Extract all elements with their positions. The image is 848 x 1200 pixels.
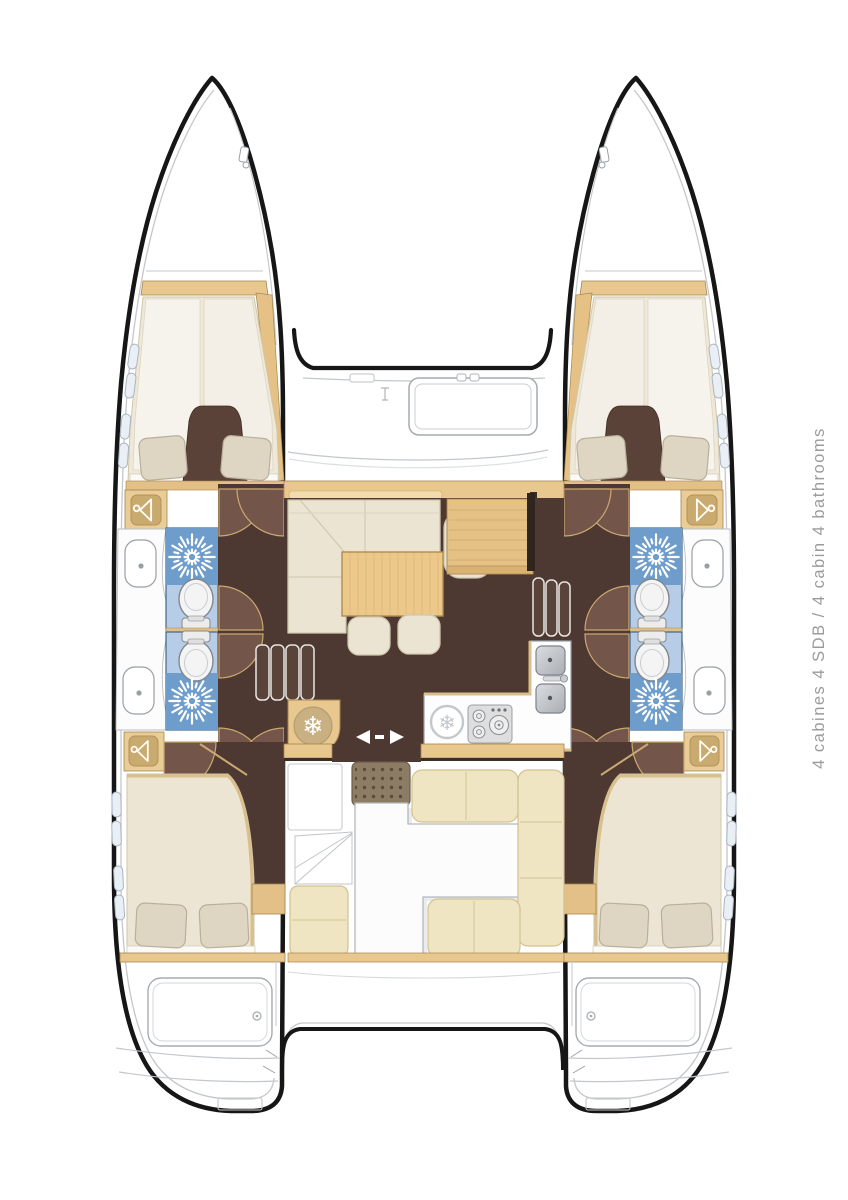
floor-plan-svg: ❄ ❄ <box>0 0 848 1200</box>
bench-cushion <box>518 770 564 946</box>
step <box>256 645 269 700</box>
step <box>559 582 570 636</box>
hull-port <box>112 78 285 1111</box>
faucet-icon <box>543 675 568 682</box>
snowflake-icon: ❄ <box>438 711 456 735</box>
cockpit-stairs <box>295 832 352 884</box>
step <box>301 645 314 700</box>
ottoman <box>348 617 390 655</box>
step <box>271 645 284 700</box>
catamaran-floor-plan: ❄ ❄ <box>0 0 848 1200</box>
bench-cushion <box>290 886 348 956</box>
saloon-table <box>342 552 443 616</box>
stove-icon <box>468 705 512 743</box>
cockpit <box>288 762 564 978</box>
step <box>286 645 299 700</box>
coachroof-front <box>294 330 551 368</box>
aft-crossbeam <box>282 1023 563 1070</box>
helm-panel <box>288 764 342 830</box>
snowflake-icon: ❄ <box>302 712 324 742</box>
saloon-front-cabinet <box>284 481 564 499</box>
foredeck-hatch <box>409 374 537 435</box>
nacelle-center: ❄ ❄ <box>256 330 571 1070</box>
layout-caption: 4 cabines 4 SDB / 4 cabin 4 bathrooms <box>810 427 828 769</box>
step <box>546 580 557 636</box>
step <box>533 578 544 636</box>
bench-cushion <box>412 770 518 822</box>
ottoman <box>398 615 440 654</box>
hull-starboard <box>563 78 736 1111</box>
nav-desk <box>447 493 535 574</box>
steps-starboard <box>533 578 570 636</box>
cockpit-grating <box>352 762 410 806</box>
cockpit-aft-edge <box>288 953 564 962</box>
